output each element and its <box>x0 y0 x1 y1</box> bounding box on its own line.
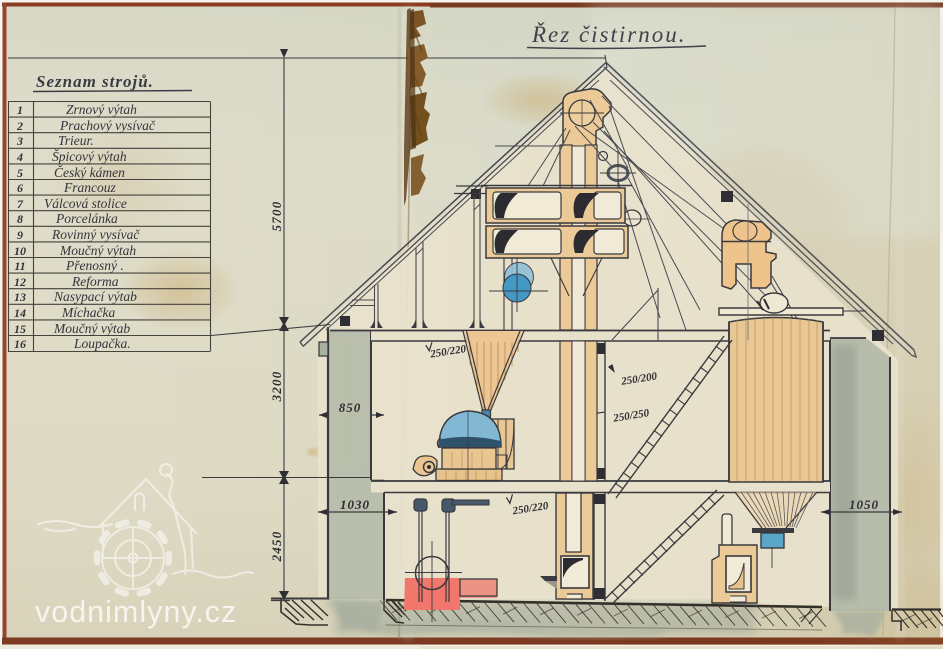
svg-text:Zrnový výtah: Zrnový výtah <box>66 102 137 117</box>
svg-text:Reforma: Reforma <box>71 274 119 289</box>
svg-text:Rovinný vysívač: Rovinný vysívač <box>51 227 140 242</box>
svg-text:12: 12 <box>14 275 26 289</box>
svg-text:Přenosný .: Přenosný . <box>65 258 124 273</box>
svg-text:2450: 2450 <box>269 531 284 563</box>
svg-text:Špicový výtah: Špicový výtah <box>52 149 127 164</box>
svg-text:Moučný výtah: Moučný výtah <box>59 243 136 258</box>
svg-text:1030: 1030 <box>340 497 370 512</box>
svg-text:Nasypací výtab: Nasypací výtab <box>53 289 137 304</box>
svg-text:Válcová stolice: Válcová stolice <box>44 196 127 211</box>
svg-text:Řez čistirnou.: Řez čistirnou. <box>531 22 687 47</box>
svg-text:6: 6 <box>17 181 23 195</box>
svg-text:2: 2 <box>16 119 23 133</box>
svg-text:1: 1 <box>17 103 23 117</box>
svg-text:11: 11 <box>14 259 25 273</box>
svg-text:Francouz: Francouz <box>63 180 116 195</box>
svg-text:10: 10 <box>14 244 26 258</box>
svg-text:3: 3 <box>16 134 23 148</box>
svg-text:Český kámen: Český kámen <box>54 165 125 180</box>
svg-text:14: 14 <box>14 306 26 320</box>
svg-text:15: 15 <box>14 322 26 336</box>
svg-text:vodnimlyny.cz: vodnimlyny.cz <box>35 595 237 629</box>
svg-text:850: 850 <box>339 400 362 415</box>
svg-text:Seznam strojů.: Seznam strojů. <box>36 72 154 91</box>
svg-text:13: 13 <box>14 290 26 304</box>
svg-text:9: 9 <box>17 228 23 242</box>
svg-text:5: 5 <box>17 166 23 180</box>
svg-text:Porcelánka: Porcelánka <box>55 211 118 226</box>
svg-text:Prachový vysívač: Prachový vysívač <box>59 118 156 133</box>
svg-text:7: 7 <box>17 197 24 211</box>
svg-text:Loupačka.: Loupačka. <box>73 336 131 351</box>
svg-text:Moučný výtab: Moučný výtab <box>53 321 130 336</box>
svg-text:Míchačka: Míchačka <box>61 305 115 320</box>
svg-text:8: 8 <box>17 212 23 226</box>
svg-text:16: 16 <box>14 337 26 351</box>
svg-text:Trieur.: Trieur. <box>58 133 94 148</box>
svg-text:3200: 3200 <box>269 371 284 403</box>
svg-text:5700: 5700 <box>269 201 284 232</box>
svg-text:4: 4 <box>16 150 23 164</box>
svg-text:1050: 1050 <box>849 497 879 512</box>
